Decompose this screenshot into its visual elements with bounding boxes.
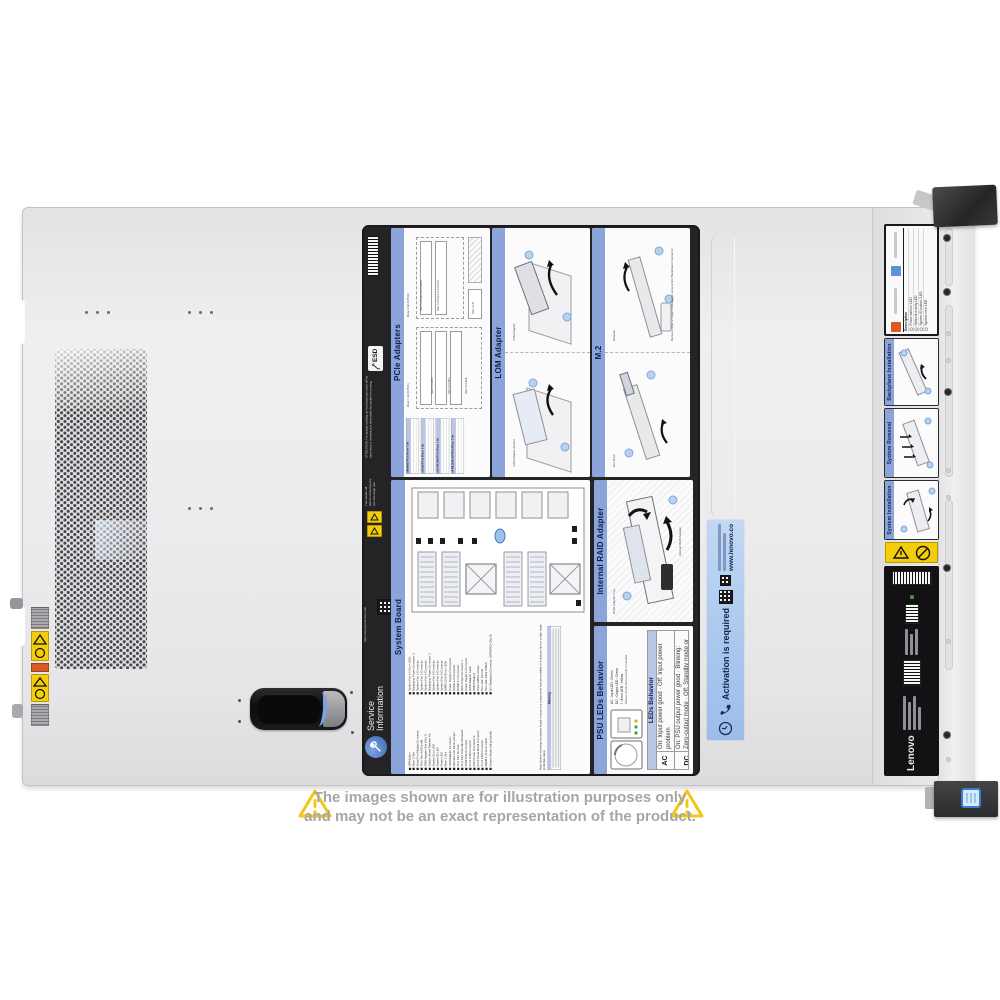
operator-panel-legend-label: Description Power button / LEDNetwork ac… (884, 224, 939, 336)
power-off-warning-text: Turn power off before removing any non-h… (365, 478, 377, 506)
warning-triangle-icon (370, 527, 379, 535)
regulatory-label: Lenovo CE (884, 566, 939, 776)
server-top-view-photo: COMPAN COMPAN COMPAN COMPAN COMPAN COMPA… (0, 0, 1000, 1000)
memory-table-header: Memory (548, 626, 551, 769)
vent-dots (85, 311, 110, 314)
warning-triangle-icon (370, 513, 379, 521)
m2-note: Remove Riser 2 Cage if installed to acce… (671, 241, 674, 341)
psu-panel-title: PSU LEDs Behavior (594, 626, 607, 774)
warning-label-small (367, 525, 382, 537)
chassis-edge-notch (16, 300, 25, 344)
slot-label: Slot 6 PCIe3 x16 FH/FL (437, 279, 440, 311)
system-board-title: System Board (391, 480, 405, 774)
attention-text: ATTENTION: For proper cooling, do not le… (365, 371, 373, 458)
orange-label (31, 663, 49, 672)
cover-emboss-line (711, 234, 735, 518)
latch-screw (351, 731, 354, 734)
flange-hole (946, 757, 951, 762)
legend-column-1: NMI ButtonRiser 2 SlotSerial Port Module… (408, 699, 493, 770)
psu-diagram (610, 708, 644, 770)
m2-remove-diagram (609, 357, 685, 473)
system-removal-label: System Removal (884, 408, 939, 478)
orange-touchpoint-swatch (891, 322, 901, 332)
service-information-branding: Service Information (361, 634, 391, 758)
esd-text: ESD (372, 349, 379, 362)
activation-sticker: Activation is required www.lenovo.com/ac… (707, 520, 744, 740)
chassis-edge-pin (12, 704, 23, 718)
slot-label: Slot 4 LP (472, 302, 475, 314)
flange-slot (945, 500, 953, 670)
screw (944, 565, 950, 571)
activation-title: Activation is required (721, 608, 731, 700)
slot-label: Slot 1 FH/FL (431, 377, 432, 394)
phone-icon (719, 704, 732, 717)
regulatory-barcode (903, 660, 921, 686)
system-board-footnotes: Note: Before removing the system board, … (539, 618, 587, 770)
system-installation-diagram (894, 481, 938, 539)
disclaimer: The images shown are for illustration pu… (0, 789, 1000, 827)
lom-adapter-panel: LOM Adapter LOM Adapter Airduct LOM Adap (492, 228, 590, 477)
clock-icon (718, 721, 733, 736)
barcode-label (31, 607, 49, 629)
legend-column-2: System Fan 1-6 Error LEDsBackplane Power… (408, 623, 493, 694)
vent-dots (188, 507, 213, 510)
section-title: Backplane Installation (885, 339, 894, 405)
warning-label (31, 674, 49, 702)
latch-screw (238, 720, 241, 723)
serial-barcode (892, 571, 932, 585)
m2-callout: Retainer (613, 330, 616, 341)
m2-panel-title: M.2 (592, 228, 605, 477)
lom-install-diagram (509, 357, 585, 473)
rear2-kit-label: Rear 2 kit (CPU2) (407, 293, 410, 317)
pcie-riser-tables: x8/x8/x8 PCIe Riser 1 kitx16/x8 PCIe Ris… (406, 418, 488, 474)
raid-callout: RAID Adapter Tray (613, 589, 616, 614)
chassis-edge-notch (16, 606, 25, 646)
raid-adapter-diagram (609, 482, 689, 620)
activation-url: www.lenovo.com/activate (728, 524, 735, 571)
psu-led-table: LEDs Behavior ACOn: Input power good · O… (647, 630, 689, 770)
lom-callout: LOM Adapter Airduct (513, 439, 516, 467)
branding-line2: Information (376, 686, 385, 731)
warning-triangle-icon (32, 675, 48, 701)
lom-panel-title: LOM Adapter (492, 228, 505, 477)
rear1-kit-label: Rear 1 kit (CPU1) (407, 383, 410, 407)
no-lift-icon (915, 545, 931, 561)
green-cert-dot (910, 595, 914, 599)
pcie-adapters-panel: PCIe Adapters x8/x8/x8 PCIe Riser 1 kitx… (391, 228, 490, 477)
slot-label: Slot 5 PCIe3 x16 FH/FL (420, 279, 423, 311)
system-board-note: Note: Before removing the system board, … (539, 618, 546, 770)
vent-reflection (55, 349, 147, 409)
regulatory-barcode (905, 604, 919, 624)
disclaimer-line1: The images shown are for illustration pu… (0, 789, 1000, 808)
latch-screw (350, 691, 353, 694)
service-tools-icon (365, 736, 387, 758)
system-board-legend: NMI ButtonRiser 2 SlotSerial Port Module… (408, 618, 538, 770)
backplane-installation-label: Backplane Installation (884, 338, 939, 406)
system-installation-label: System Installation (884, 480, 939, 540)
m2-callout: M.2 Drive (613, 454, 616, 467)
pcie-slot-diagram: Rear 1 kit (CPU1) Rear 2 kit (CPU2) Slot… (406, 230, 488, 415)
backplane-diagram (894, 339, 938, 405)
warning-label (31, 631, 49, 661)
cover-release-latch (250, 688, 347, 730)
flange-hole (946, 468, 951, 473)
raid-panel-title: Internal RAID Adapter (594, 480, 607, 622)
warning-label-small (367, 511, 382, 523)
m2-panel: M.2 M.2 Drive Retainer Remove Rise (592, 228, 690, 477)
power-off-warning: Turn power off before removing any non-h… (365, 478, 386, 506)
system-removal-diagram (894, 409, 938, 477)
warning-triangle-icon (892, 545, 910, 560)
chassis-edge-pin (10, 598, 23, 609)
section-title: System Removal (885, 409, 894, 477)
caution-label (885, 542, 938, 563)
screw (944, 235, 950, 241)
vent-dots (188, 311, 213, 314)
esd-wrist-strap-icon (370, 363, 381, 370)
esd-label: ESD (368, 346, 383, 371)
lom-callout: LOM Adapter (513, 323, 516, 341)
warning-triangle-icon (32, 632, 48, 660)
flange-hole (946, 495, 951, 500)
section-title: System Installation (885, 481, 894, 539)
psu-led-legend: AC : Input LED : GreenDC : Output LED : … (610, 630, 644, 704)
vent-reflection (95, 520, 147, 560)
activation-qr-code (719, 590, 733, 604)
label-barcode (367, 235, 379, 277)
lom-adapter-diagram (509, 233, 585, 347)
psu-note: Please check Setup Guide for details. (625, 630, 628, 704)
system-board-panel: System Board NMI ButtonRiser 2 SlotSeria… (391, 480, 590, 774)
screw (944, 289, 950, 295)
internal-raid-panel: Internal RAID Adapter RAID Adapter Tray … (594, 480, 693, 622)
screw (945, 389, 951, 395)
system-board-diagram (408, 484, 587, 614)
raid-callout: Internal RAID Adapter (679, 527, 682, 556)
psu-table-header: LEDs Behavior (648, 631, 656, 769)
rack-handle-top (932, 185, 998, 228)
disclaimer-line2: and may not be an exact representation o… (0, 808, 1000, 827)
barcode-label (31, 704, 49, 726)
flange-hole (946, 331, 951, 336)
screw (944, 732, 950, 738)
blue-touchpoint-swatch (891, 266, 901, 276)
flange-hole (946, 639, 951, 644)
latch-recess (258, 694, 320, 724)
lenovo-logo: Lenovo (906, 735, 917, 771)
activation-qr-code (720, 575, 731, 586)
psu-leds-panel: PSU LEDs Behavior AC : Input LED : Green… (594, 626, 693, 774)
flange-hole (946, 358, 951, 363)
attention-note: ATTENTION: For proper cooling, do not le… (365, 371, 385, 458)
pcie-panel-title: PCIe Adapters (391, 228, 404, 477)
latch-screw (238, 699, 241, 702)
chassis-front-flange (938, 208, 975, 785)
